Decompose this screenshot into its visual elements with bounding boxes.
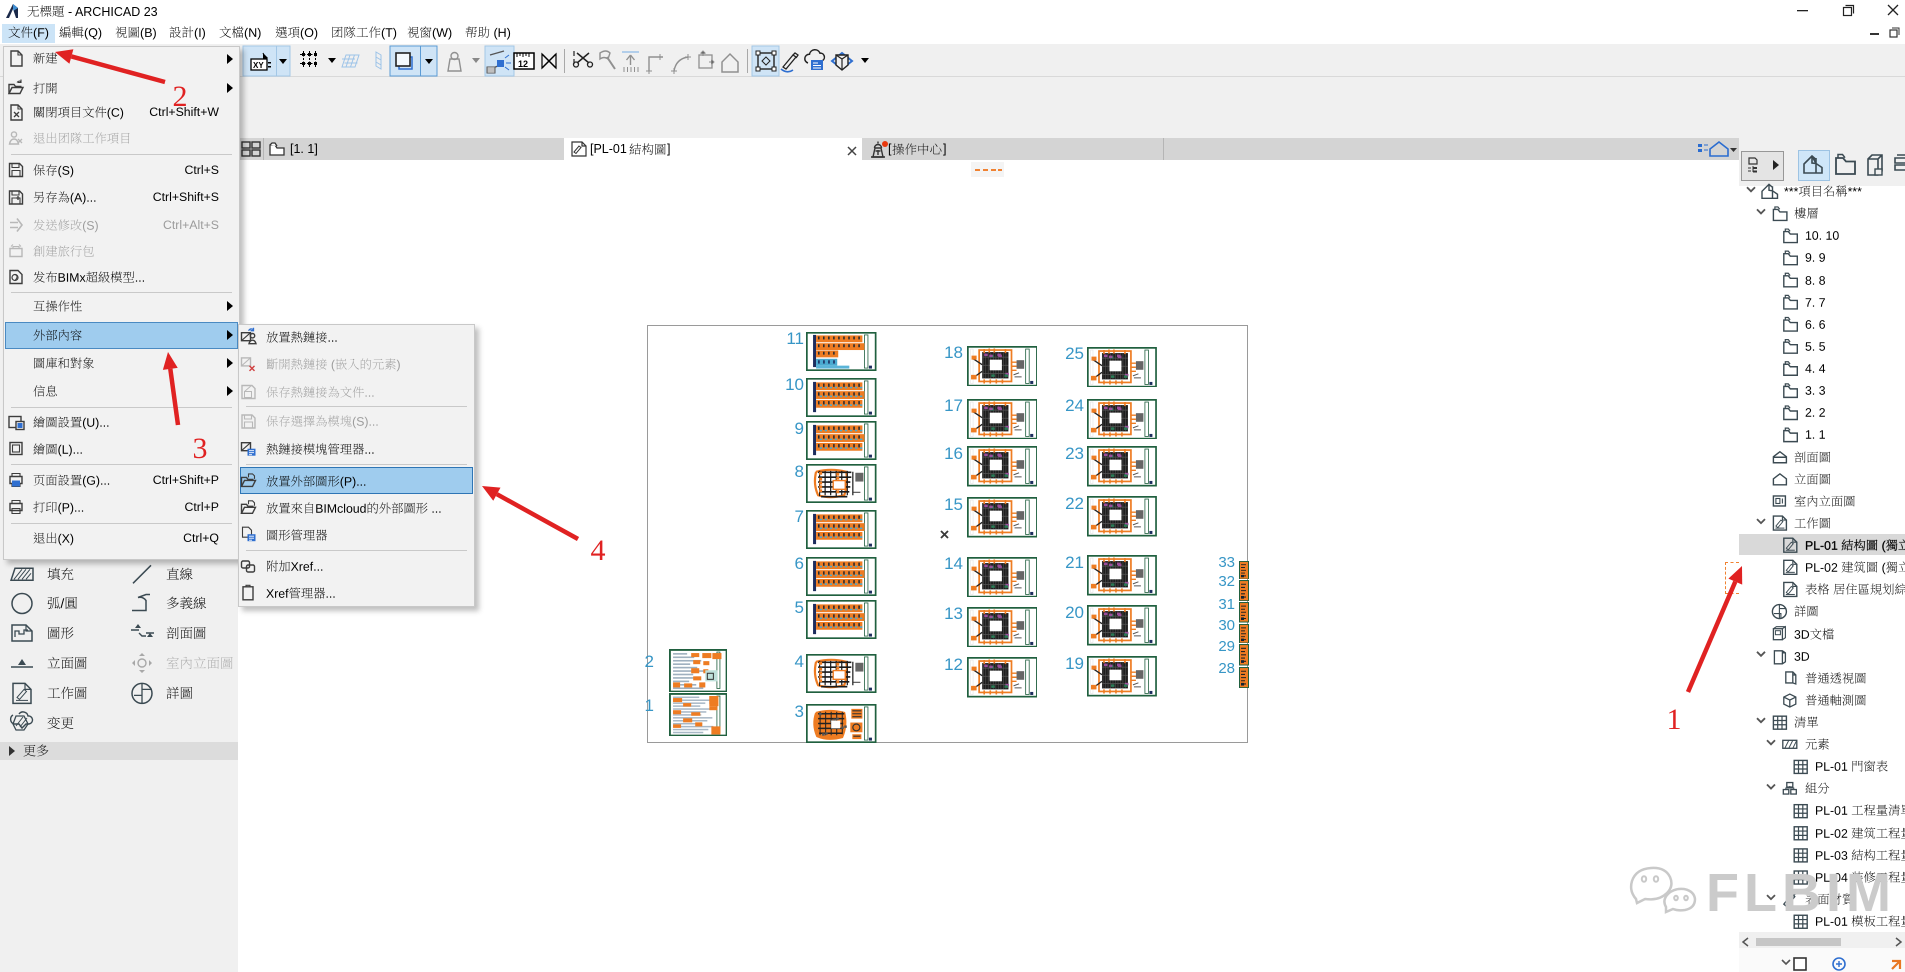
svg-text:12: 12 — [518, 59, 528, 69]
